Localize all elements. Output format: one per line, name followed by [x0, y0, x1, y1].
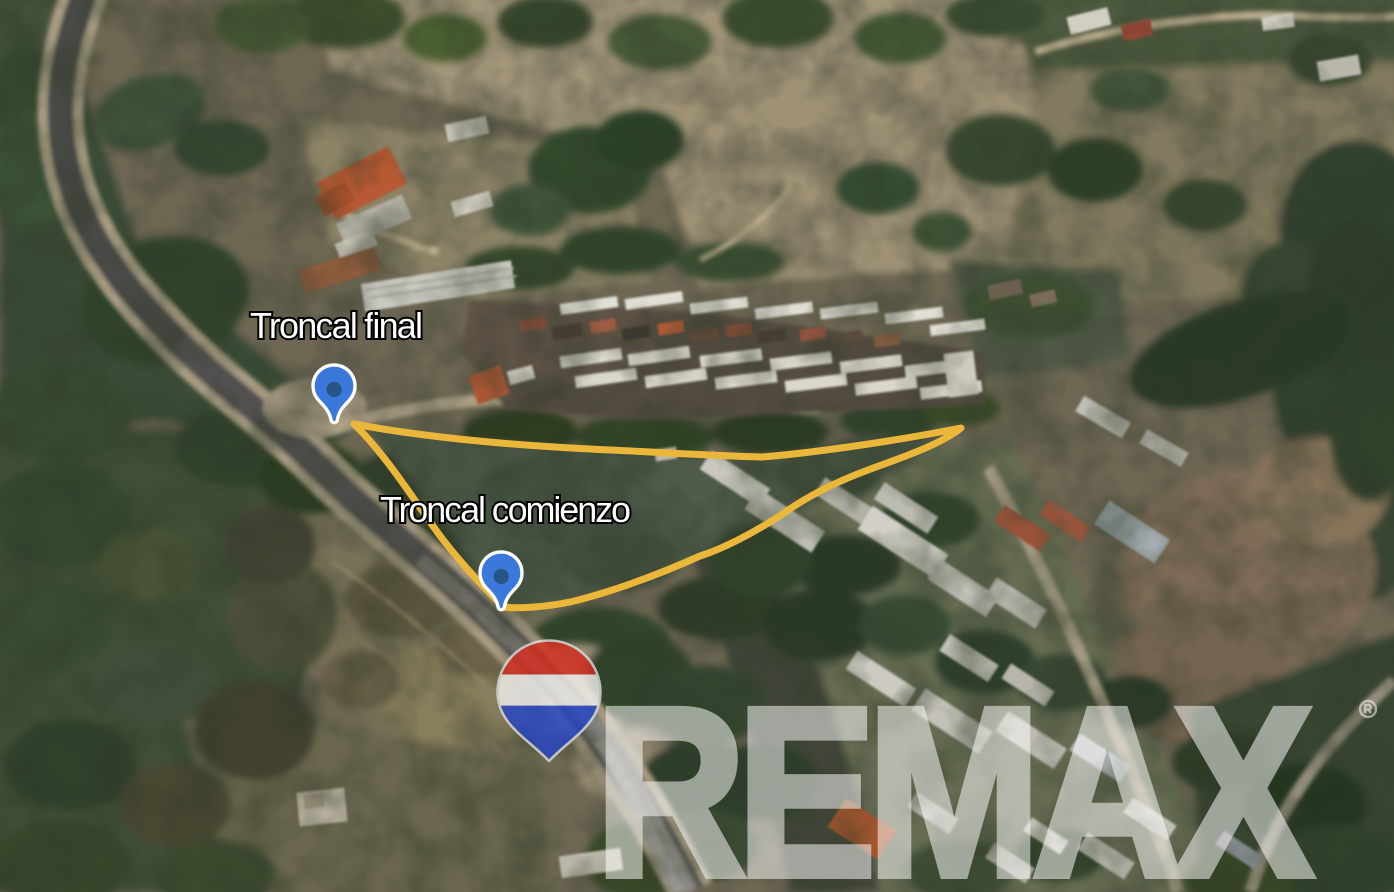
svg-text:Troncal final: Troncal final — [250, 305, 423, 346]
svg-text:REMAX: REMAX — [595, 658, 1311, 892]
svg-text:Troncal comienzo: Troncal comienzo — [380, 489, 631, 530]
